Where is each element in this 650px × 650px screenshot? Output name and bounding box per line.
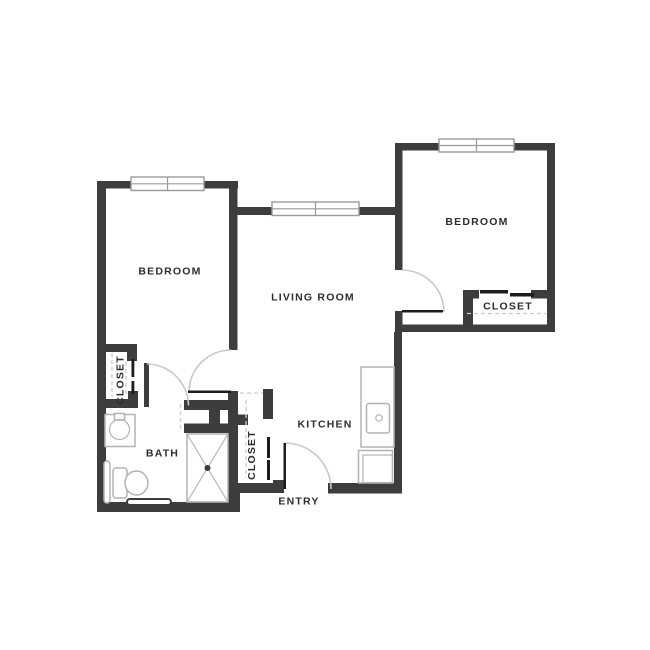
closet-right-label: CLOSET bbox=[483, 301, 533, 313]
bedroom2-door-leaf bbox=[402, 310, 443, 313]
closet-middle-label: CLOSET bbox=[246, 430, 258, 480]
wall-closet-middle-front-top bbox=[263, 389, 273, 419]
stove bbox=[359, 451, 393, 484]
wall-bath-niche-top bbox=[184, 400, 230, 410]
wall-closet-right-top-left bbox=[463, 290, 479, 299]
wall-closet-middle-front-bottom bbox=[273, 480, 284, 493]
bath-sink bbox=[105, 414, 135, 447]
entry-label: ENTRY bbox=[278, 496, 319, 508]
closet-left-door-panel-1 bbox=[132, 359, 135, 377]
closet-middle-door-panel-1 bbox=[267, 437, 270, 458]
wall-closet-left-top-block bbox=[127, 344, 137, 361]
bedroom2-label: BEDROOM bbox=[445, 216, 508, 228]
bath-door-arc bbox=[147, 364, 189, 406]
wall-bedroom2-door-jamb bbox=[395, 311, 403, 325]
wall-kitchen-right bbox=[394, 332, 402, 492]
closet-left-door-panel-2 bbox=[132, 381, 135, 394]
wall-bedroom2-bottom bbox=[395, 325, 555, 333]
wall-bedroom2-left bbox=[395, 143, 403, 270]
entry-door-arc bbox=[285, 443, 331, 489]
grab-bar bbox=[104, 461, 110, 503]
bath-door-leaf bbox=[144, 363, 149, 407]
closet-right-slider-panel-2 bbox=[510, 293, 534, 297]
closet-left-label: CLOSET bbox=[115, 355, 127, 405]
floor-plan-page: BEDROOM LIVING ROOM BEDROOM CLOSET BATH … bbox=[0, 0, 650, 650]
bedroom1-window bbox=[131, 177, 204, 191]
livingroom-label: LIVING ROOM bbox=[271, 292, 355, 304]
shower-drain bbox=[205, 465, 211, 471]
windows bbox=[131, 139, 514, 216]
kitchen-label: KITCHEN bbox=[297, 419, 352, 431]
wall-bedroom2-right bbox=[547, 143, 555, 332]
shower bbox=[187, 434, 228, 502]
toilet bbox=[113, 468, 148, 498]
towel-bar bbox=[127, 499, 171, 505]
livingroom-window bbox=[272, 202, 359, 216]
wall-bath-niche-bottom bbox=[184, 424, 230, 434]
bedroom1-door-arc bbox=[189, 350, 231, 392]
bedroom2-window bbox=[439, 139, 514, 152]
kitchen-sink bbox=[367, 404, 390, 434]
closet-middle-door-panel-2 bbox=[267, 460, 270, 480]
bedroom2-door-arc bbox=[402, 270, 444, 312]
wall-bath-niche-divider bbox=[209, 410, 220, 424]
bedroom1-label: BEDROOM bbox=[138, 266, 201, 278]
wall-bedroom1-right bbox=[229, 181, 238, 350]
wall-kitchen-bottom bbox=[328, 483, 402, 494]
wall-livingroom-top-left bbox=[237, 207, 273, 215]
floor-plan: BEDROOM LIVING ROOM BEDROOM CLOSET BATH … bbox=[0, 0, 650, 650]
entry-door-leaf bbox=[284, 443, 287, 489]
bedroom1-door-leaf bbox=[188, 391, 231, 394]
bath-label: BATH bbox=[146, 448, 179, 460]
closet-right-slider-panel-1 bbox=[480, 290, 508, 294]
